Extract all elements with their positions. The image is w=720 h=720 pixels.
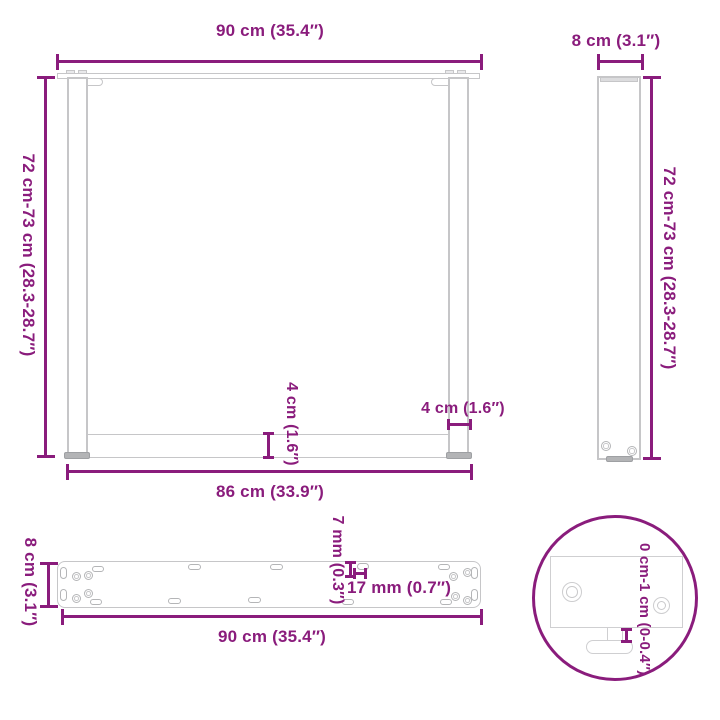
- detail-screw-hole: [562, 582, 582, 602]
- front-left-foot: [64, 452, 90, 459]
- plate-slot-measured: [357, 563, 369, 570]
- detail-screw-hole: [653, 597, 670, 614]
- plate-end-slot: [60, 567, 67, 579]
- plate-hole-height-label: 7 mm (0.3″): [327, 510, 347, 610]
- side-foot: [606, 456, 633, 462]
- front-top-plate: [57, 73, 480, 79]
- front-right-flange: [431, 78, 449, 86]
- side-width-dimension-line: [597, 60, 644, 63]
- plate-end-slot: [471, 567, 478, 579]
- plate-screw-hole: [463, 568, 472, 577]
- plate-screw-hole: [463, 596, 472, 605]
- front-bottom-width-dimension-line: [66, 470, 473, 473]
- plate-slot: [270, 564, 283, 570]
- plate-screw-hole: [72, 594, 81, 603]
- front-height-dimension-line: [44, 76, 47, 458]
- front-crossbar-height-dimension-line: [267, 432, 270, 459]
- side-screw-hole: [627, 446, 637, 456]
- front-height-label: 72 cm-73 cm (28.3-28.7″): [18, 125, 38, 385]
- plate-length-label: 90 cm (35.4″): [122, 627, 422, 647]
- plate-screw-hole: [72, 572, 81, 581]
- plate-length-dimension-line: [61, 615, 483, 618]
- detail-foot-label: 0 cm-1 cm (0-0.4″): [634, 543, 654, 663]
- plate-slot: [188, 564, 201, 570]
- plate-slot: [248, 597, 261, 603]
- side-leg-body: [597, 76, 641, 460]
- side-width-label: 8 cm (3.1″): [536, 31, 696, 51]
- dimension-diagram: 90 cm (35.4″) 72 cm-73 cm (28.3-28.7″) 4…: [0, 0, 720, 720]
- side-screw-hole: [601, 441, 611, 451]
- side-height-label: 72 cm-73 cm (28.3-28.7″): [659, 138, 679, 398]
- plate-depth-dimension-line: [47, 562, 50, 608]
- plate-hole-width-label: 17 mm (0.7″): [347, 578, 457, 598]
- front-crossbar-height-label: 4 cm (1.6″): [281, 374, 301, 474]
- front-right-foot: [446, 452, 472, 459]
- plate-hole-height-dimension-line: [349, 561, 352, 578]
- front-post-width-dimension-line: [447, 423, 472, 426]
- front-left-post: [67, 77, 88, 458]
- detail-foot-dimension-line: [625, 628, 628, 643]
- plate-slot: [440, 599, 452, 605]
- front-bottom-width-label: 86 cm (33.9″): [120, 482, 420, 502]
- plate-depth-label: 8 cm (3.1″): [20, 532, 40, 632]
- plate-end-slot: [471, 589, 478, 601]
- plate-slot: [92, 566, 104, 572]
- plate-screw-hole: [84, 571, 93, 580]
- front-post-width-label: 4 cm (1.6″): [417, 399, 509, 419]
- side-top-cap: [600, 77, 638, 82]
- plate-screw-hole: [84, 589, 93, 598]
- front-top-width-dimension-line: [56, 60, 483, 63]
- plate-hole-width-dimension-line: [353, 572, 367, 575]
- plate-slot: [438, 564, 450, 570]
- front-top-width-label: 90 cm (35.4″): [120, 21, 420, 41]
- plate-end-slot: [60, 589, 67, 601]
- side-height-dimension-line: [650, 76, 653, 460]
- plate-slot: [168, 598, 181, 604]
- plate-slot: [90, 599, 102, 605]
